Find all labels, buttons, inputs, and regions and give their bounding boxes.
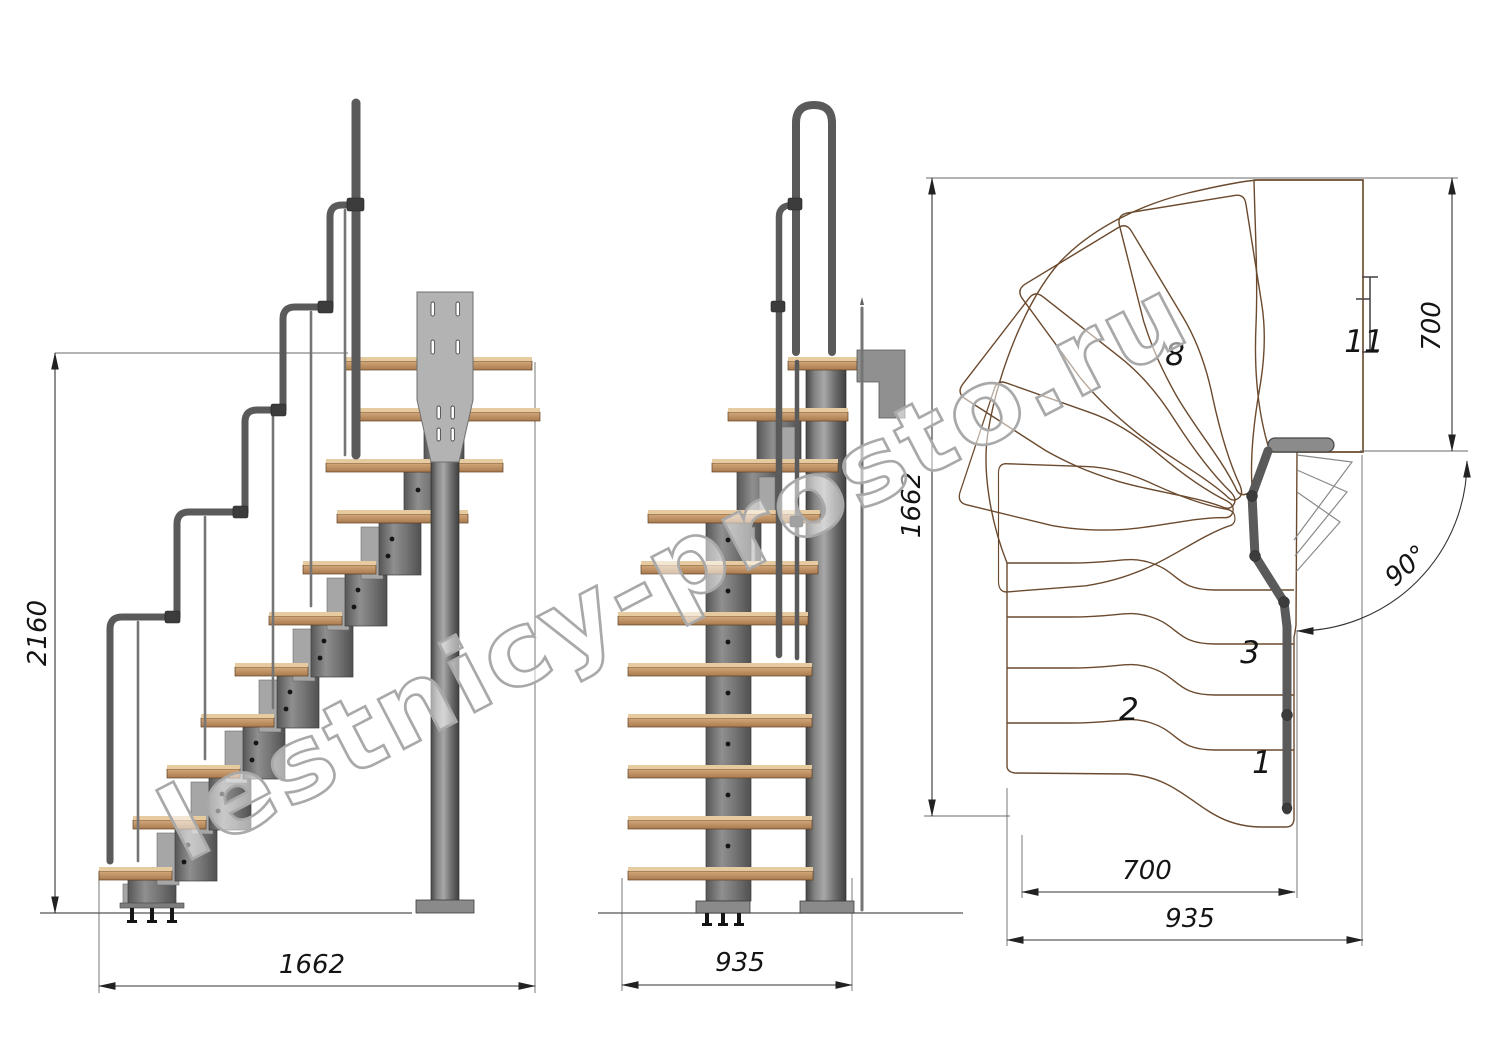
handrail-loop	[796, 105, 832, 352]
side-elevation-view: 2160 1662	[23, 103, 540, 993]
handrail-top-tube	[1268, 438, 1334, 452]
dim-flight-width: 700	[1022, 856, 1295, 892]
dim-side-length: 1662	[99, 950, 535, 986]
support-arms-plan	[1294, 455, 1352, 572]
tread-number-1: 1	[1252, 745, 1272, 781]
dim-flight-width-label: 700	[1122, 856, 1172, 886]
tread-number-3: 3	[1240, 635, 1260, 671]
pole-base-flange	[416, 900, 474, 913]
staircase-technical-drawing: 2160 1662	[0, 0, 1500, 1061]
dim-turn-angle-label: 90°	[1379, 539, 1433, 592]
tread-number-11: 11	[1344, 324, 1383, 360]
dim-plan-total-width: 935	[1007, 904, 1363, 940]
dim-landing-width: 700	[1417, 178, 1452, 451]
landing-tread	[1254, 180, 1363, 452]
dim-side-length-label: 1662	[279, 950, 345, 980]
dim-turn-angle: 90°	[1297, 461, 1467, 631]
plan-view: 1662 700 90° 700 935 1 2 3 8 11	[897, 178, 1468, 946]
central-pole-side	[416, 292, 474, 913]
dim-plan-total-width-label: 935	[1165, 904, 1215, 934]
mounting-plate	[417, 292, 473, 462]
dim-total-height: 2160	[23, 353, 55, 913]
dim-landing-width-label: 700	[1417, 301, 1447, 351]
watermark: lestnicy-prosto.ru	[141, 253, 1207, 885]
dim-front-width: 935	[622, 948, 852, 985]
tread-number-2: 2	[1119, 692, 1139, 728]
plan-wood-region	[986, 180, 1363, 827]
dim-total-height-label: 2160	[23, 600, 53, 666]
dim-front-width-label: 935	[715, 948, 765, 978]
